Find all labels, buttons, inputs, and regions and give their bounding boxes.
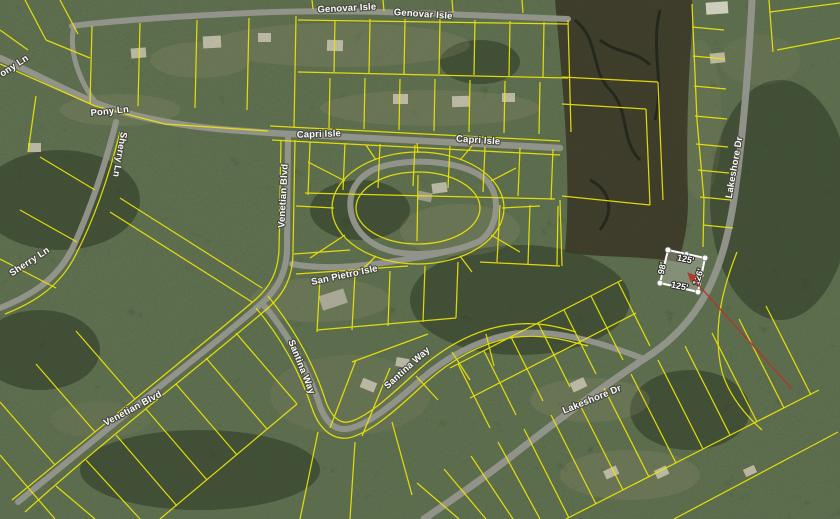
vertex-handle[interactable] [657, 280, 663, 286]
street-label-capri-isle-a: Capri Isle [297, 128, 342, 141]
vertex-handle[interactable] [665, 247, 671, 253]
marsh-area [555, 0, 692, 262]
vertex-handle[interactable] [702, 255, 708, 261]
vertex-handle[interactable] [695, 289, 701, 295]
map-canvas[interactable]: Genovar Isle Genovar Isle Pony Ln Pony L… [0, 0, 840, 519]
